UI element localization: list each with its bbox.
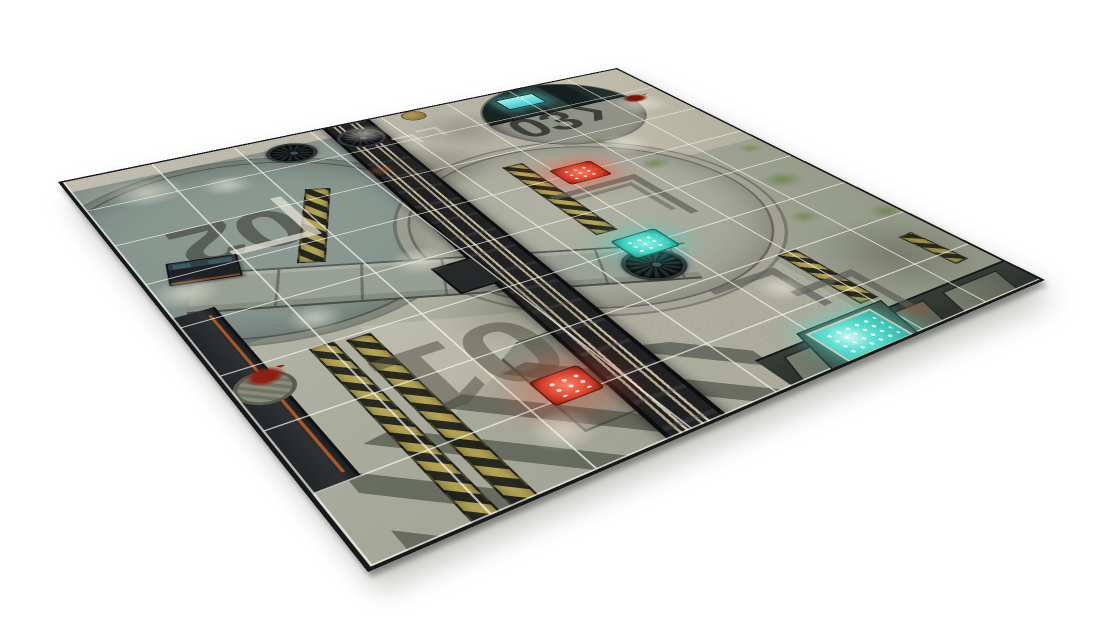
battle-mat: 03 ❯ 01 [58, 68, 1045, 572]
product-photo-stage: 03 ❯ 01 [0, 0, 1100, 620]
led-dots [540, 371, 593, 399]
mat-scene: 03 ❯ 01 [0, 0, 1100, 620]
